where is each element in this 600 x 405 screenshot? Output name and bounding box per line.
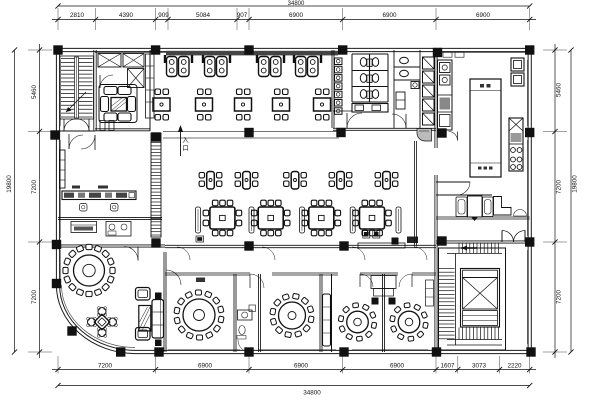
svg-text:5084: 5084	[196, 12, 211, 19]
svg-text:909: 909	[158, 12, 169, 19]
svg-text:34800: 34800	[288, 1, 305, 7]
svg-text:入: 入	[182, 137, 189, 144]
svg-text:907: 907	[237, 12, 248, 19]
svg-text:6900: 6900	[390, 363, 405, 370]
svg-text:口: 口	[182, 144, 189, 152]
svg-text:2220: 2220	[507, 363, 522, 370]
svg-text:2810: 2810	[70, 12, 85, 19]
svg-text:3073: 3073	[472, 363, 487, 370]
svg-text:19800: 19800	[572, 175, 579, 193]
svg-text:6900: 6900	[294, 363, 309, 370]
svg-text:4390: 4390	[119, 12, 134, 19]
svg-text:6900: 6900	[382, 12, 397, 19]
svg-text:5460: 5460	[31, 85, 38, 100]
svg-text:6900: 6900	[476, 12, 491, 19]
svg-text:1607: 1607	[440, 363, 455, 370]
svg-text:6900: 6900	[198, 363, 213, 370]
svg-text:34800: 34800	[303, 390, 321, 397]
svg-text:7200: 7200	[556, 180, 563, 195]
svg-text:5460: 5460	[556, 83, 563, 98]
svg-text:6900: 6900	[289, 12, 304, 19]
svg-text:7200: 7200	[98, 363, 113, 370]
svg-text:7200: 7200	[31, 290, 38, 305]
svg-text:7200: 7200	[556, 290, 563, 305]
svg-text:7200: 7200	[31, 180, 38, 195]
svg-text:19800: 19800	[6, 175, 13, 193]
